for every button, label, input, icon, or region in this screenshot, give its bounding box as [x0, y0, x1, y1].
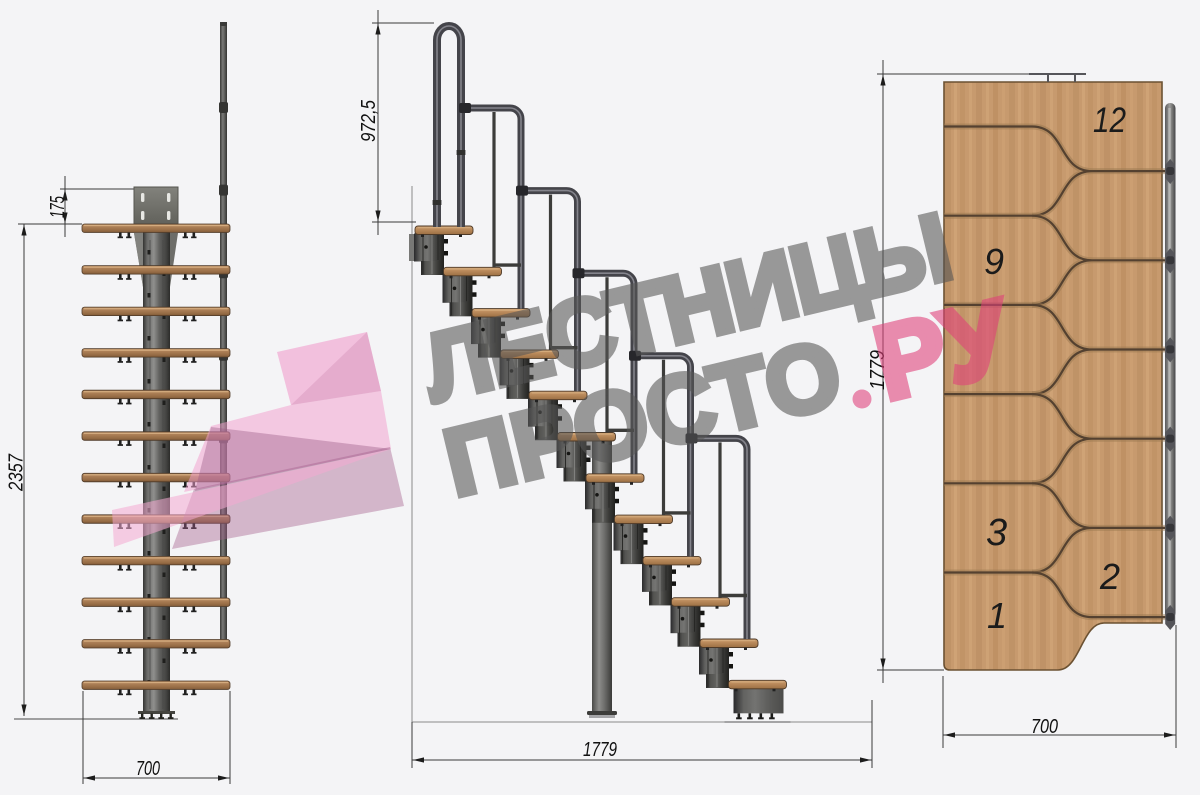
- svg-text:700: 700: [136, 758, 160, 780]
- svg-text:12: 12: [1093, 101, 1126, 140]
- svg-text:1: 1: [987, 595, 1007, 636]
- svg-text:1779: 1779: [583, 739, 617, 761]
- svg-text:972,5: 972,5: [358, 99, 380, 142]
- svg-text:175: 175: [47, 195, 69, 218]
- svg-text:9: 9: [984, 241, 1004, 282]
- svg-text:700: 700: [1031, 716, 1058, 738]
- svg-text:2: 2: [1099, 556, 1120, 597]
- svg-text:2357: 2357: [6, 453, 28, 492]
- svg-text:3: 3: [986, 512, 1007, 554]
